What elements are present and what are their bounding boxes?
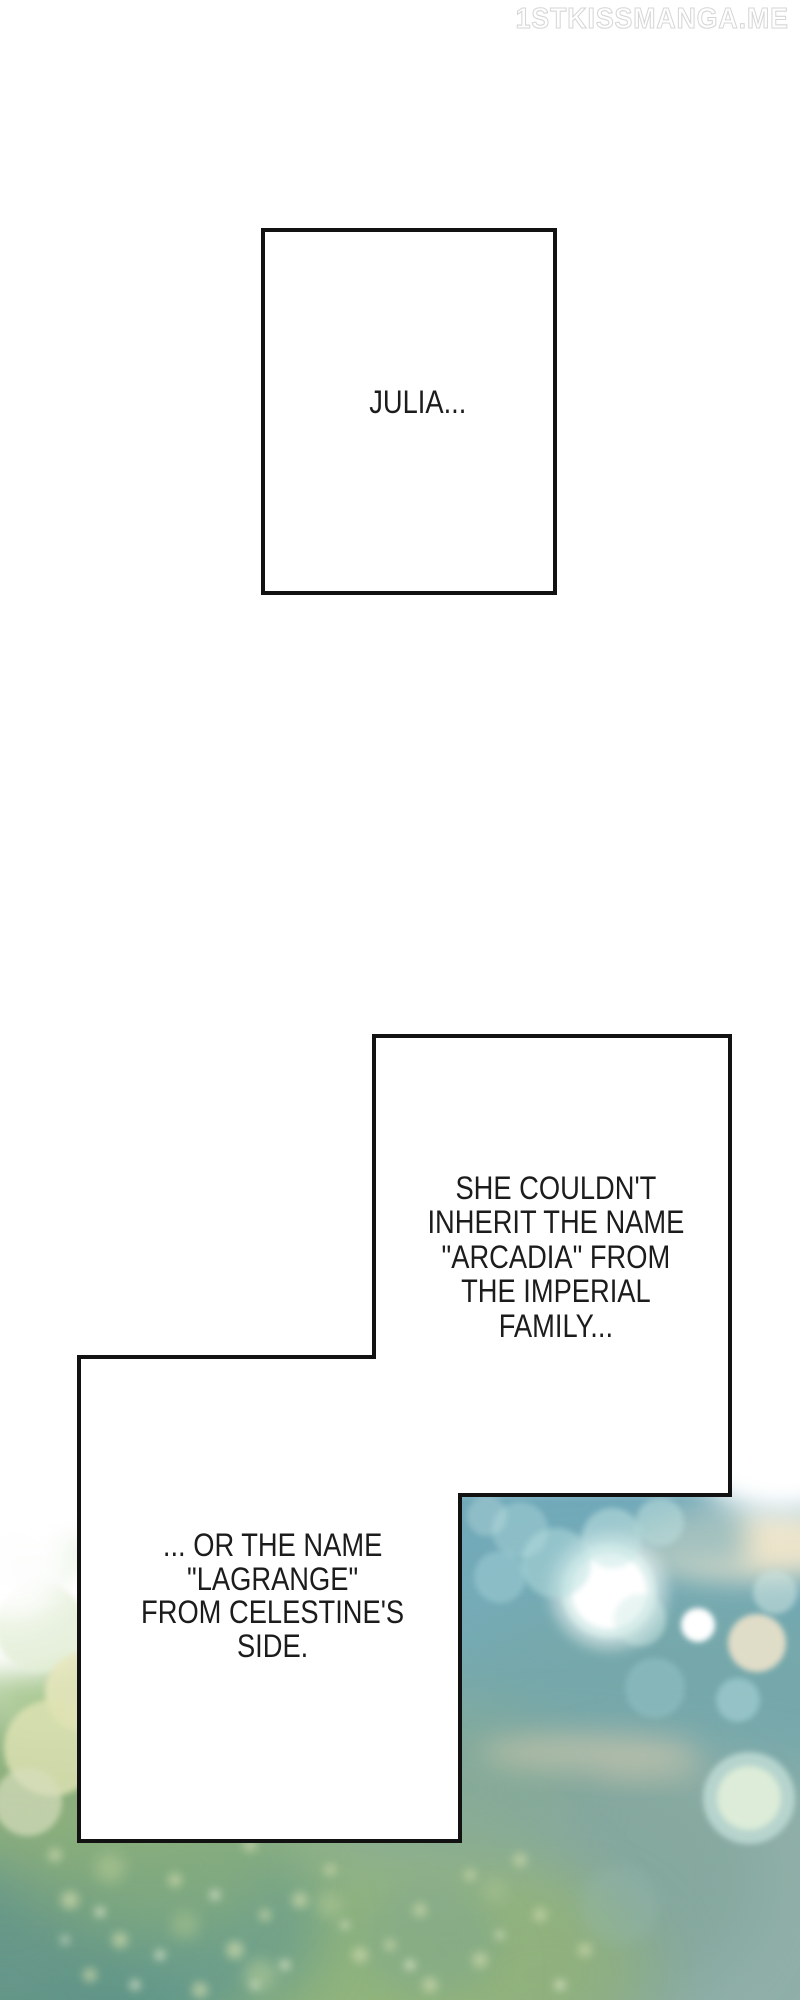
svg-text:1STKISSMANGA.ME: 1STKISSMANGA.ME [516,2,789,34]
